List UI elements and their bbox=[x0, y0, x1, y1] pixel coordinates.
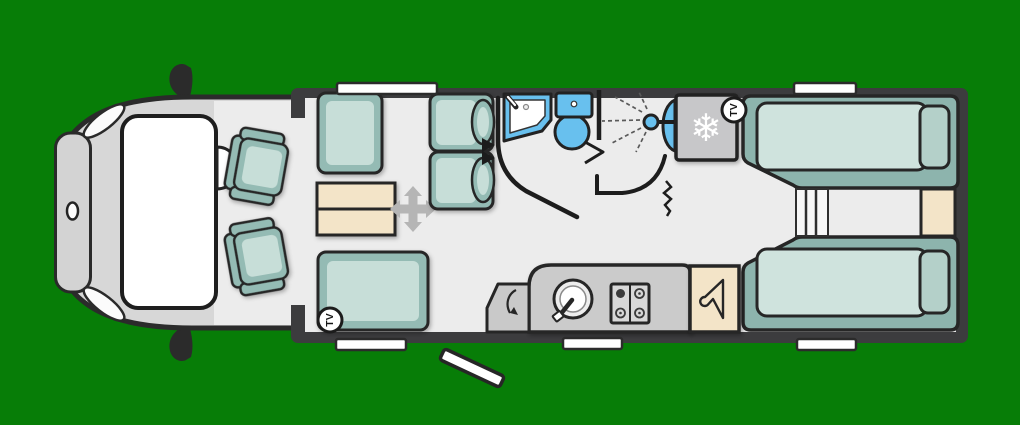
hob-burner-dot bbox=[638, 312, 641, 315]
hob-burner-active bbox=[616, 289, 625, 298]
snowflake-icon: ❄ bbox=[690, 106, 722, 150]
lounge-sofa-top-cushion bbox=[326, 101, 374, 165]
windscreen bbox=[122, 116, 216, 308]
front-emblem bbox=[67, 203, 78, 220]
bed-bottom-mattress bbox=[757, 249, 927, 316]
hob bbox=[611, 284, 649, 323]
seat-cushion-inner bbox=[241, 234, 283, 278]
window-front-top bbox=[337, 83, 437, 94]
bed-bottom-pillow bbox=[920, 251, 949, 313]
table-leaf-top bbox=[317, 183, 395, 209]
wardrobe-box bbox=[690, 266, 739, 332]
toilet-bowl bbox=[555, 115, 589, 149]
hob-burner-dot bbox=[638, 292, 641, 295]
entrance-door bbox=[487, 284, 529, 332]
sink-drain bbox=[524, 105, 529, 110]
window-front-bottom bbox=[336, 339, 406, 350]
wardrobe bbox=[690, 266, 739, 332]
bedside-cabinet bbox=[921, 189, 955, 236]
travel-seat-top-cushion bbox=[436, 100, 476, 145]
kitchen bbox=[529, 265, 690, 332]
headrest-top-inner bbox=[477, 107, 489, 137]
toilet-flush-button bbox=[571, 101, 577, 107]
tv-badge-label: TV bbox=[728, 103, 740, 116]
window-rear-top bbox=[794, 83, 856, 94]
tv-badge-front: TV bbox=[318, 308, 342, 332]
motorhome-floorplan: ❄ bbox=[0, 0, 1020, 425]
floorplan-stage: ❄ bbox=[0, 0, 1020, 425]
travel-seat-bottom-cushion bbox=[436, 158, 476, 203]
travel-seats bbox=[430, 94, 495, 209]
window-kitchen-bottom bbox=[563, 338, 622, 349]
hob-burner-dot bbox=[619, 312, 622, 315]
bed-top-mattress bbox=[757, 103, 927, 170]
window-rear-bottom bbox=[797, 339, 856, 350]
tv-badge-rear: TV bbox=[722, 98, 746, 122]
headrest-bottom-inner bbox=[477, 165, 489, 195]
pedestal-table bbox=[317, 183, 395, 235]
bedroom-steps bbox=[796, 189, 828, 236]
table-leaf-bottom bbox=[317, 209, 395, 235]
seat-cushion-inner bbox=[241, 145, 283, 189]
shower-head-icon bbox=[644, 115, 658, 129]
tv-badge-label: TV bbox=[324, 313, 336, 326]
bed-top-pillow bbox=[920, 106, 949, 168]
